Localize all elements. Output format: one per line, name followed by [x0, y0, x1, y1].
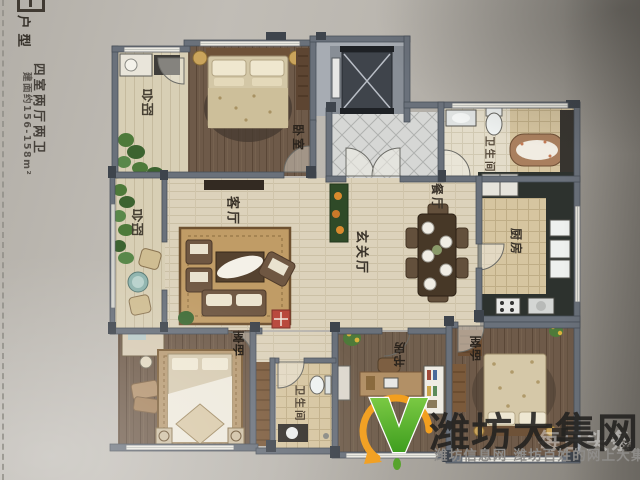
- cut-line: [2, 0, 4, 480]
- mascot-mark-icon: ※: [620, 440, 632, 454]
- room-label-bedroom-left: 卧室: [232, 330, 246, 356]
- unit-type-title: 户型: [14, 15, 30, 52]
- room-label-bathroom-bottom: 卫生间: [293, 385, 305, 423]
- room-label-hall: 玄关厅: [353, 230, 368, 275]
- unit-area-text: 建面约156-158m²: [21, 72, 32, 176]
- room-label-bedroom-top: 卧室: [291, 124, 305, 152]
- unit-layout-text: 四室两厅两卫: [31, 63, 46, 156]
- brand-mark-icon: [17, 0, 45, 12]
- elevator: [330, 46, 404, 114]
- room-label-bedroom-right: 卧室: [469, 335, 483, 361]
- brochure-photo: 户型 四室两厅两卫 建面约156-158m² 阳台 卧室 卫生间 餐厅 厨房 阳…: [0, 0, 640, 480]
- room-label-bathroom-top: 卫生间: [483, 136, 495, 174]
- room-label-balcony-top: 阳台: [142, 88, 157, 116]
- watermark-tagline: 潍坊信息网 潍坊百姓的网上大集: [434, 444, 640, 464]
- room-label-living: 客厅: [224, 196, 239, 226]
- room-label-kitchen: 厨房: [509, 228, 523, 256]
- room-label-balcony-left: 阳台: [132, 208, 147, 236]
- room-label-dining: 餐厅: [430, 183, 444, 211]
- room-label-study: 书房: [393, 341, 407, 367]
